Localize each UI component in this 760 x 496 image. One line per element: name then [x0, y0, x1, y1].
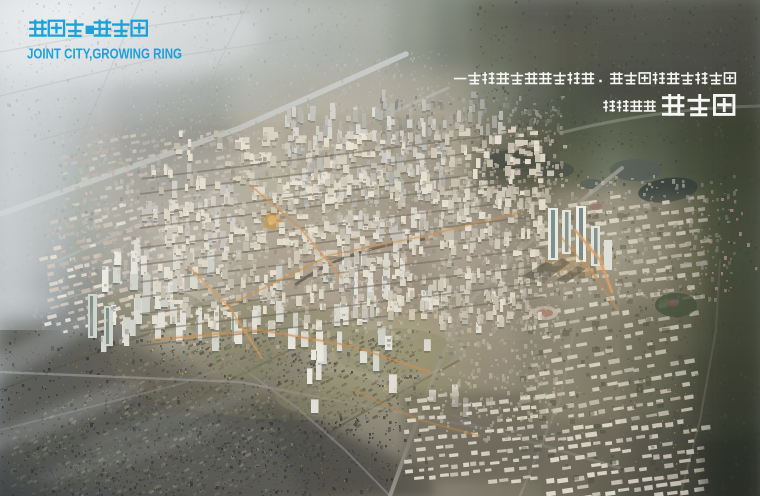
svg-text:JOINT CITY,GROWING RING: JOINT CITY,GROWING RING — [27, 46, 182, 63]
